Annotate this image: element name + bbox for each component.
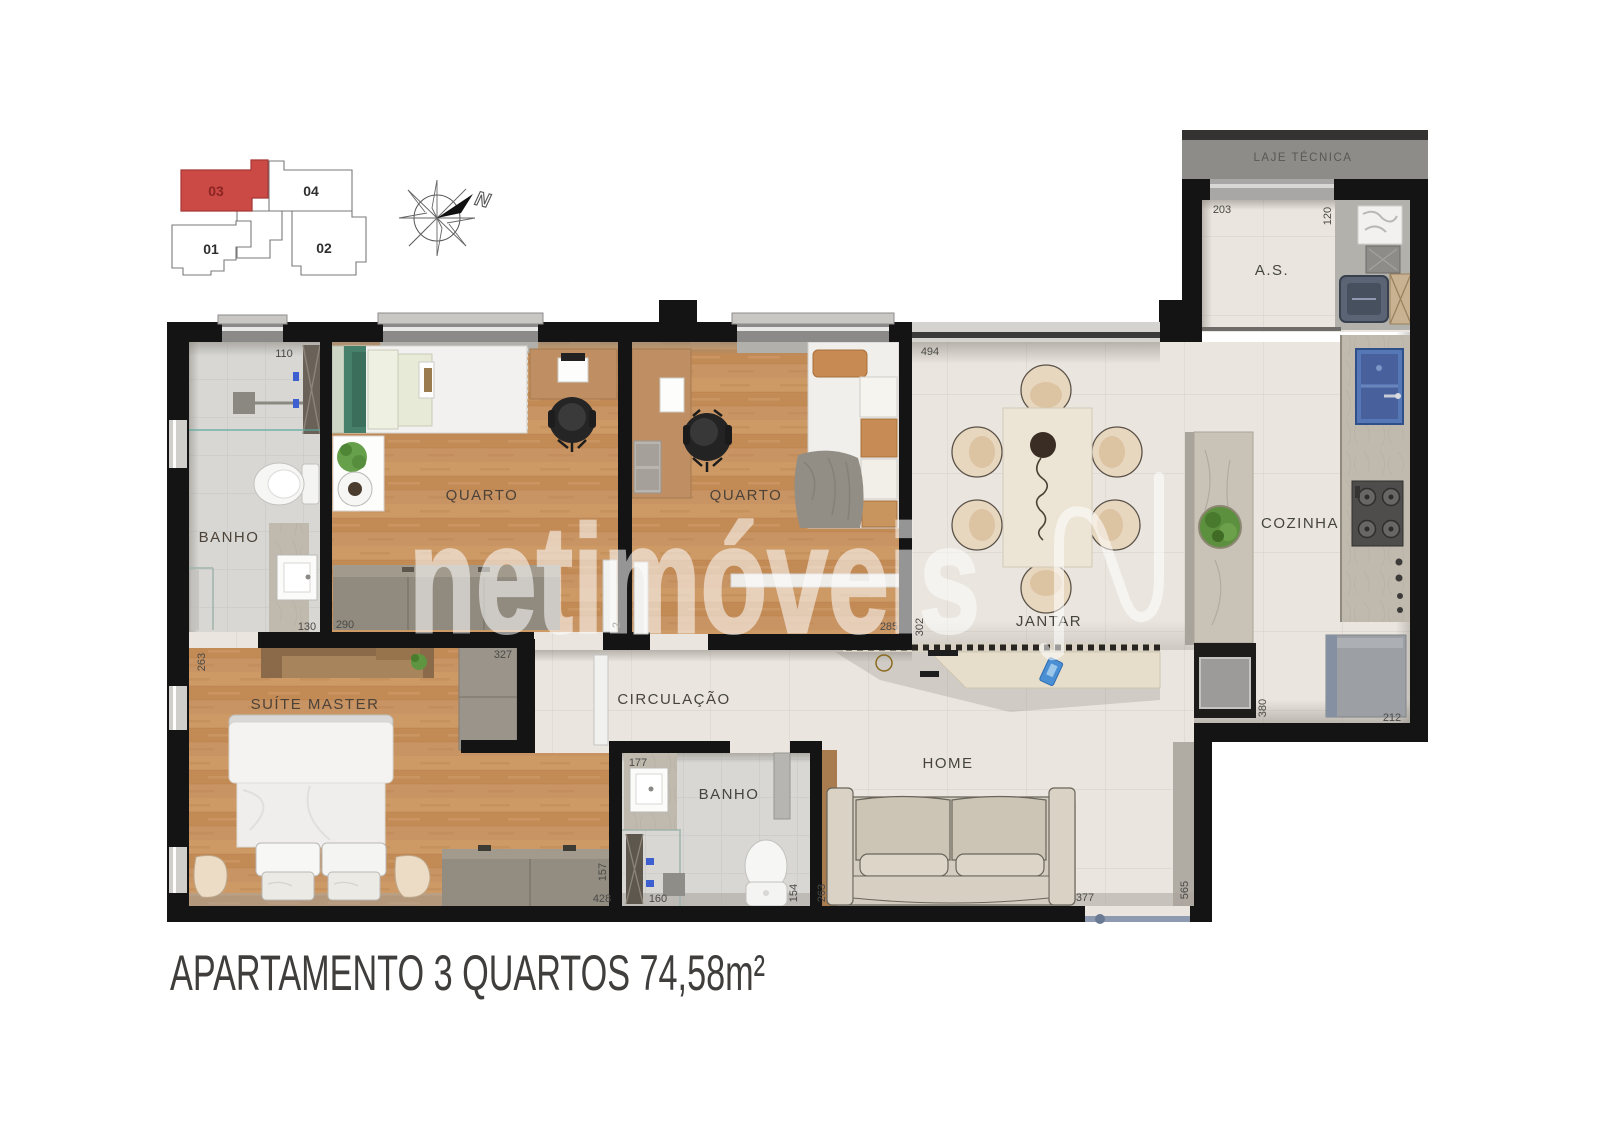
svg-text:177: 177 (629, 757, 647, 769)
svg-text:110: 110 (275, 348, 293, 360)
svg-text:565: 565 (1179, 881, 1191, 899)
svg-text:JANTAR: JANTAR (1016, 613, 1082, 630)
svg-text:CIRCULAÇÃO: CIRCULAÇÃO (617, 691, 730, 708)
svg-text:263: 263 (196, 653, 208, 671)
svg-text:APARTAMENTO 3 QUARTOS 74,58m²: APARTAMENTO 3 QUARTOS 74,58m² (170, 945, 765, 1001)
svg-text:154: 154 (788, 884, 800, 902)
svg-text:130: 130 (298, 621, 316, 633)
svg-text:160: 160 (649, 893, 667, 905)
svg-text:04: 04 (303, 183, 319, 199)
svg-text:120: 120 (1322, 207, 1334, 225)
svg-text:COZINHA: COZINHA (1261, 515, 1339, 532)
svg-text:157: 157 (597, 863, 609, 881)
svg-text:263: 263 (816, 884, 828, 902)
svg-text:BANHO: BANHO (199, 529, 260, 546)
svg-text:netimóveis: netimóveis (409, 494, 980, 665)
svg-text:203: 203 (1213, 204, 1231, 216)
svg-text:03: 03 (208, 183, 224, 199)
svg-text:290: 290 (336, 619, 354, 631)
svg-text:SUÍTE MASTER: SUÍTE MASTER (251, 696, 380, 713)
svg-text:428: 428 (593, 893, 611, 905)
svg-text:BANHO: BANHO (699, 786, 760, 803)
svg-text:494: 494 (921, 346, 939, 358)
svg-text:377: 377 (1076, 892, 1094, 904)
svg-text:02: 02 (316, 240, 332, 256)
svg-text:A.S.: A.S. (1255, 262, 1289, 279)
svg-text:01: 01 (203, 241, 219, 257)
svg-text:HOME: HOME (923, 755, 974, 772)
svg-text:212: 212 (1383, 712, 1401, 724)
svg-text:380: 380 (1257, 699, 1269, 717)
svg-text:LAJE TÉCNICA: LAJE TÉCNICA (1254, 151, 1353, 164)
